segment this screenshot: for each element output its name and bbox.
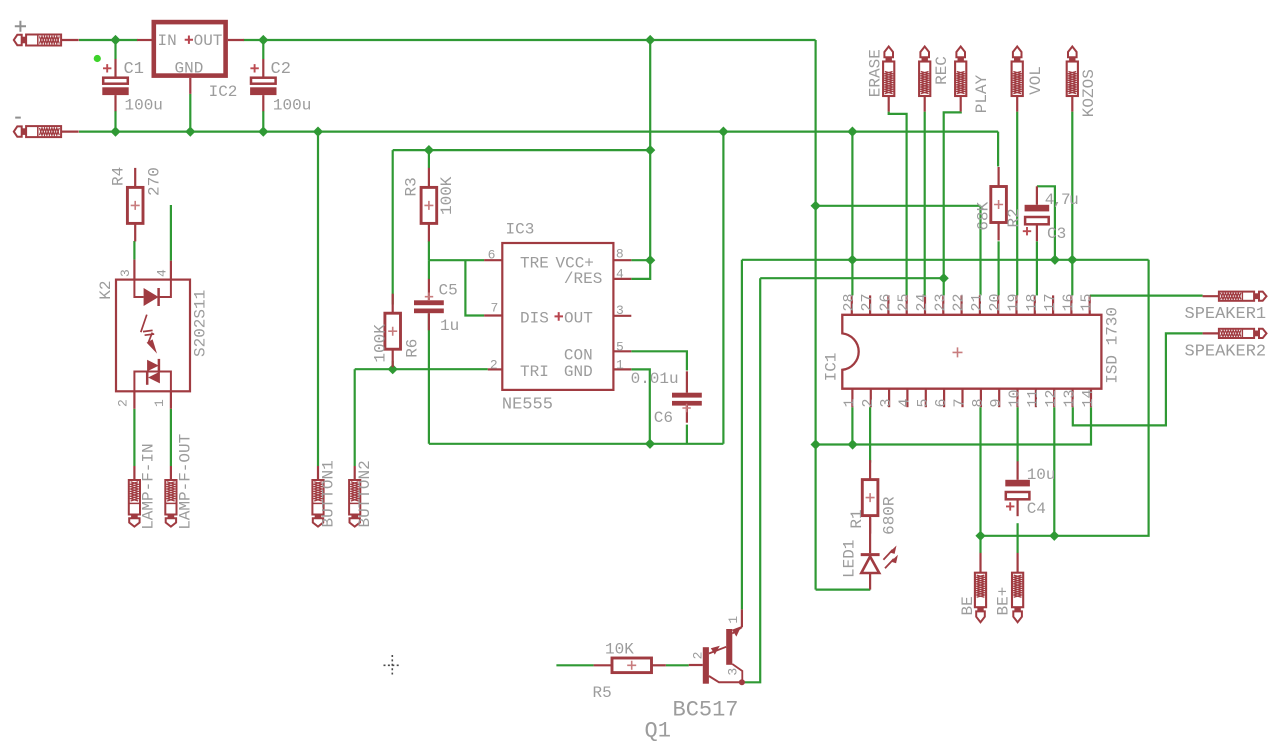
svg-text:1u: 1u (440, 317, 459, 335)
svg-text:R2: R2 (1005, 208, 1023, 227)
svg-text:TRI: TRI (520, 363, 549, 381)
svg-text:18: 18 (1024, 293, 1041, 311)
svg-text:VOL: VOL (1027, 66, 1045, 95)
svg-text:3: 3 (616, 303, 624, 318)
svg-text:7: 7 (491, 301, 499, 316)
svg-text:BUTTON1: BUTTON1 (320, 460, 338, 527)
svg-text:4: 4 (896, 398, 913, 407)
svg-text:SPEAKER1: SPEAKER1 (1185, 305, 1267, 324)
svg-text:21: 21 (969, 293, 986, 311)
svg-text:8: 8 (970, 398, 987, 407)
svg-text:NE555: NE555 (502, 396, 553, 415)
svg-text:/RES: /RES (564, 270, 602, 288)
svg-text:100K: 100K (438, 176, 456, 215)
svg-text:100u: 100u (273, 97, 311, 115)
svg-text:4,7u: 4,7u (1045, 191, 1078, 209)
svg-text:5: 5 (915, 398, 932, 407)
svg-text:CON: CON (564, 347, 593, 365)
svg-text:LAMP-F-OUT: LAMP-F-OUT (177, 434, 195, 530)
svg-text:K2: K2 (97, 280, 115, 299)
svg-text:R6: R6 (404, 339, 422, 358)
svg-text:R4: R4 (110, 167, 128, 186)
svg-text:270: 270 (146, 167, 164, 196)
svg-text:PLAY: PLAY (973, 74, 991, 113)
svg-text:GND: GND (175, 60, 204, 78)
svg-text:3: 3 (118, 269, 133, 277)
svg-text:24: 24 (914, 293, 931, 311)
svg-text:2: 2 (490, 357, 498, 372)
svg-text:IC1: IC1 (823, 353, 841, 382)
svg-text:0.01u: 0.01u (631, 370, 679, 388)
svg-text:KOZOS: KOZOS (1080, 69, 1098, 117)
svg-text:OUT: OUT (564, 309, 593, 327)
svg-text:1: 1 (616, 358, 624, 373)
svg-text:11: 11 (1025, 389, 1042, 407)
svg-text:1: 1 (841, 398, 858, 407)
svg-text:C5: C5 (439, 282, 458, 300)
svg-text:2: 2 (116, 399, 131, 407)
svg-text:DIS: DIS (520, 309, 549, 327)
svg-text:C6: C6 (654, 409, 673, 427)
svg-text:5: 5 (616, 339, 624, 354)
svg-text:C3: C3 (1047, 225, 1066, 243)
svg-text:100K: 100K (372, 324, 390, 363)
svg-text:BE: BE (959, 596, 977, 615)
svg-text:15: 15 (1079, 293, 1096, 311)
svg-text:REC: REC (933, 56, 951, 85)
svg-text:6: 6 (488, 247, 496, 262)
svg-text:LAMP-F-IN: LAMP-F-IN (140, 443, 158, 529)
svg-text:20: 20 (987, 293, 1004, 311)
svg-text:22: 22 (951, 293, 968, 311)
svg-text:C4: C4 (1027, 500, 1046, 518)
svg-text:ERASE: ERASE (867, 49, 885, 97)
svg-text:10u: 10u (1027, 466, 1056, 484)
svg-text:IC2: IC2 (209, 83, 238, 101)
svg-text:2: 2 (860, 398, 877, 407)
svg-text:GND: GND (564, 363, 593, 381)
svg-text:3: 3 (726, 668, 741, 676)
svg-text:28: 28 (841, 293, 858, 311)
svg-text:25: 25 (896, 293, 913, 311)
svg-text:10K: 10K (605, 640, 634, 658)
svg-text:LED1: LED1 (841, 540, 859, 578)
svg-text:R1: R1 (848, 509, 866, 528)
svg-text:SPEAKER2: SPEAKER2 (1185, 343, 1267, 362)
svg-text:27: 27 (859, 293, 876, 311)
svg-text:IC3: IC3 (506, 221, 535, 239)
svg-text:TRE: TRE (520, 254, 549, 272)
svg-text:100u: 100u (125, 97, 163, 115)
svg-text:BC517: BC517 (673, 698, 739, 723)
svg-text:14: 14 (1080, 389, 1097, 407)
svg-text:R5: R5 (593, 684, 612, 702)
svg-text:26: 26 (877, 293, 894, 311)
svg-text:23: 23 (932, 293, 949, 311)
svg-text:17: 17 (1042, 293, 1059, 311)
svg-text:OUT: OUT (194, 32, 223, 50)
svg-text:19: 19 (1006, 293, 1023, 311)
svg-text:13: 13 (1062, 389, 1079, 407)
svg-text:BUTTON2: BUTTON2 (356, 460, 374, 527)
svg-text:12: 12 (1043, 389, 1060, 407)
svg-text:9: 9 (988, 398, 1005, 407)
svg-text:3: 3 (878, 398, 895, 407)
svg-text:S202S11: S202S11 (192, 290, 210, 357)
svg-text:1: 1 (152, 399, 167, 407)
svg-text:C1: C1 (124, 60, 144, 79)
svg-text:680R: 680R (880, 496, 898, 535)
svg-text:R3: R3 (403, 177, 421, 196)
svg-text:10: 10 (1007, 389, 1024, 407)
svg-text:C2: C2 (271, 60, 291, 79)
svg-text:7: 7 (952, 398, 969, 407)
svg-text:1: 1 (726, 616, 741, 624)
svg-text:2: 2 (691, 652, 706, 660)
svg-text:Q1: Q1 (645, 719, 671, 741)
svg-text:16: 16 (1060, 293, 1077, 311)
svg-text:6: 6 (933, 398, 950, 407)
svg-text:8: 8 (616, 246, 624, 261)
svg-text:ISD 1730: ISD 1730 (1104, 307, 1122, 384)
svg-text:4: 4 (155, 269, 170, 277)
svg-text:4: 4 (616, 267, 624, 282)
svg-text:68K: 68K (974, 201, 992, 230)
svg-text:IN: IN (158, 32, 177, 50)
svg-text:BE+: BE+ (995, 587, 1013, 616)
